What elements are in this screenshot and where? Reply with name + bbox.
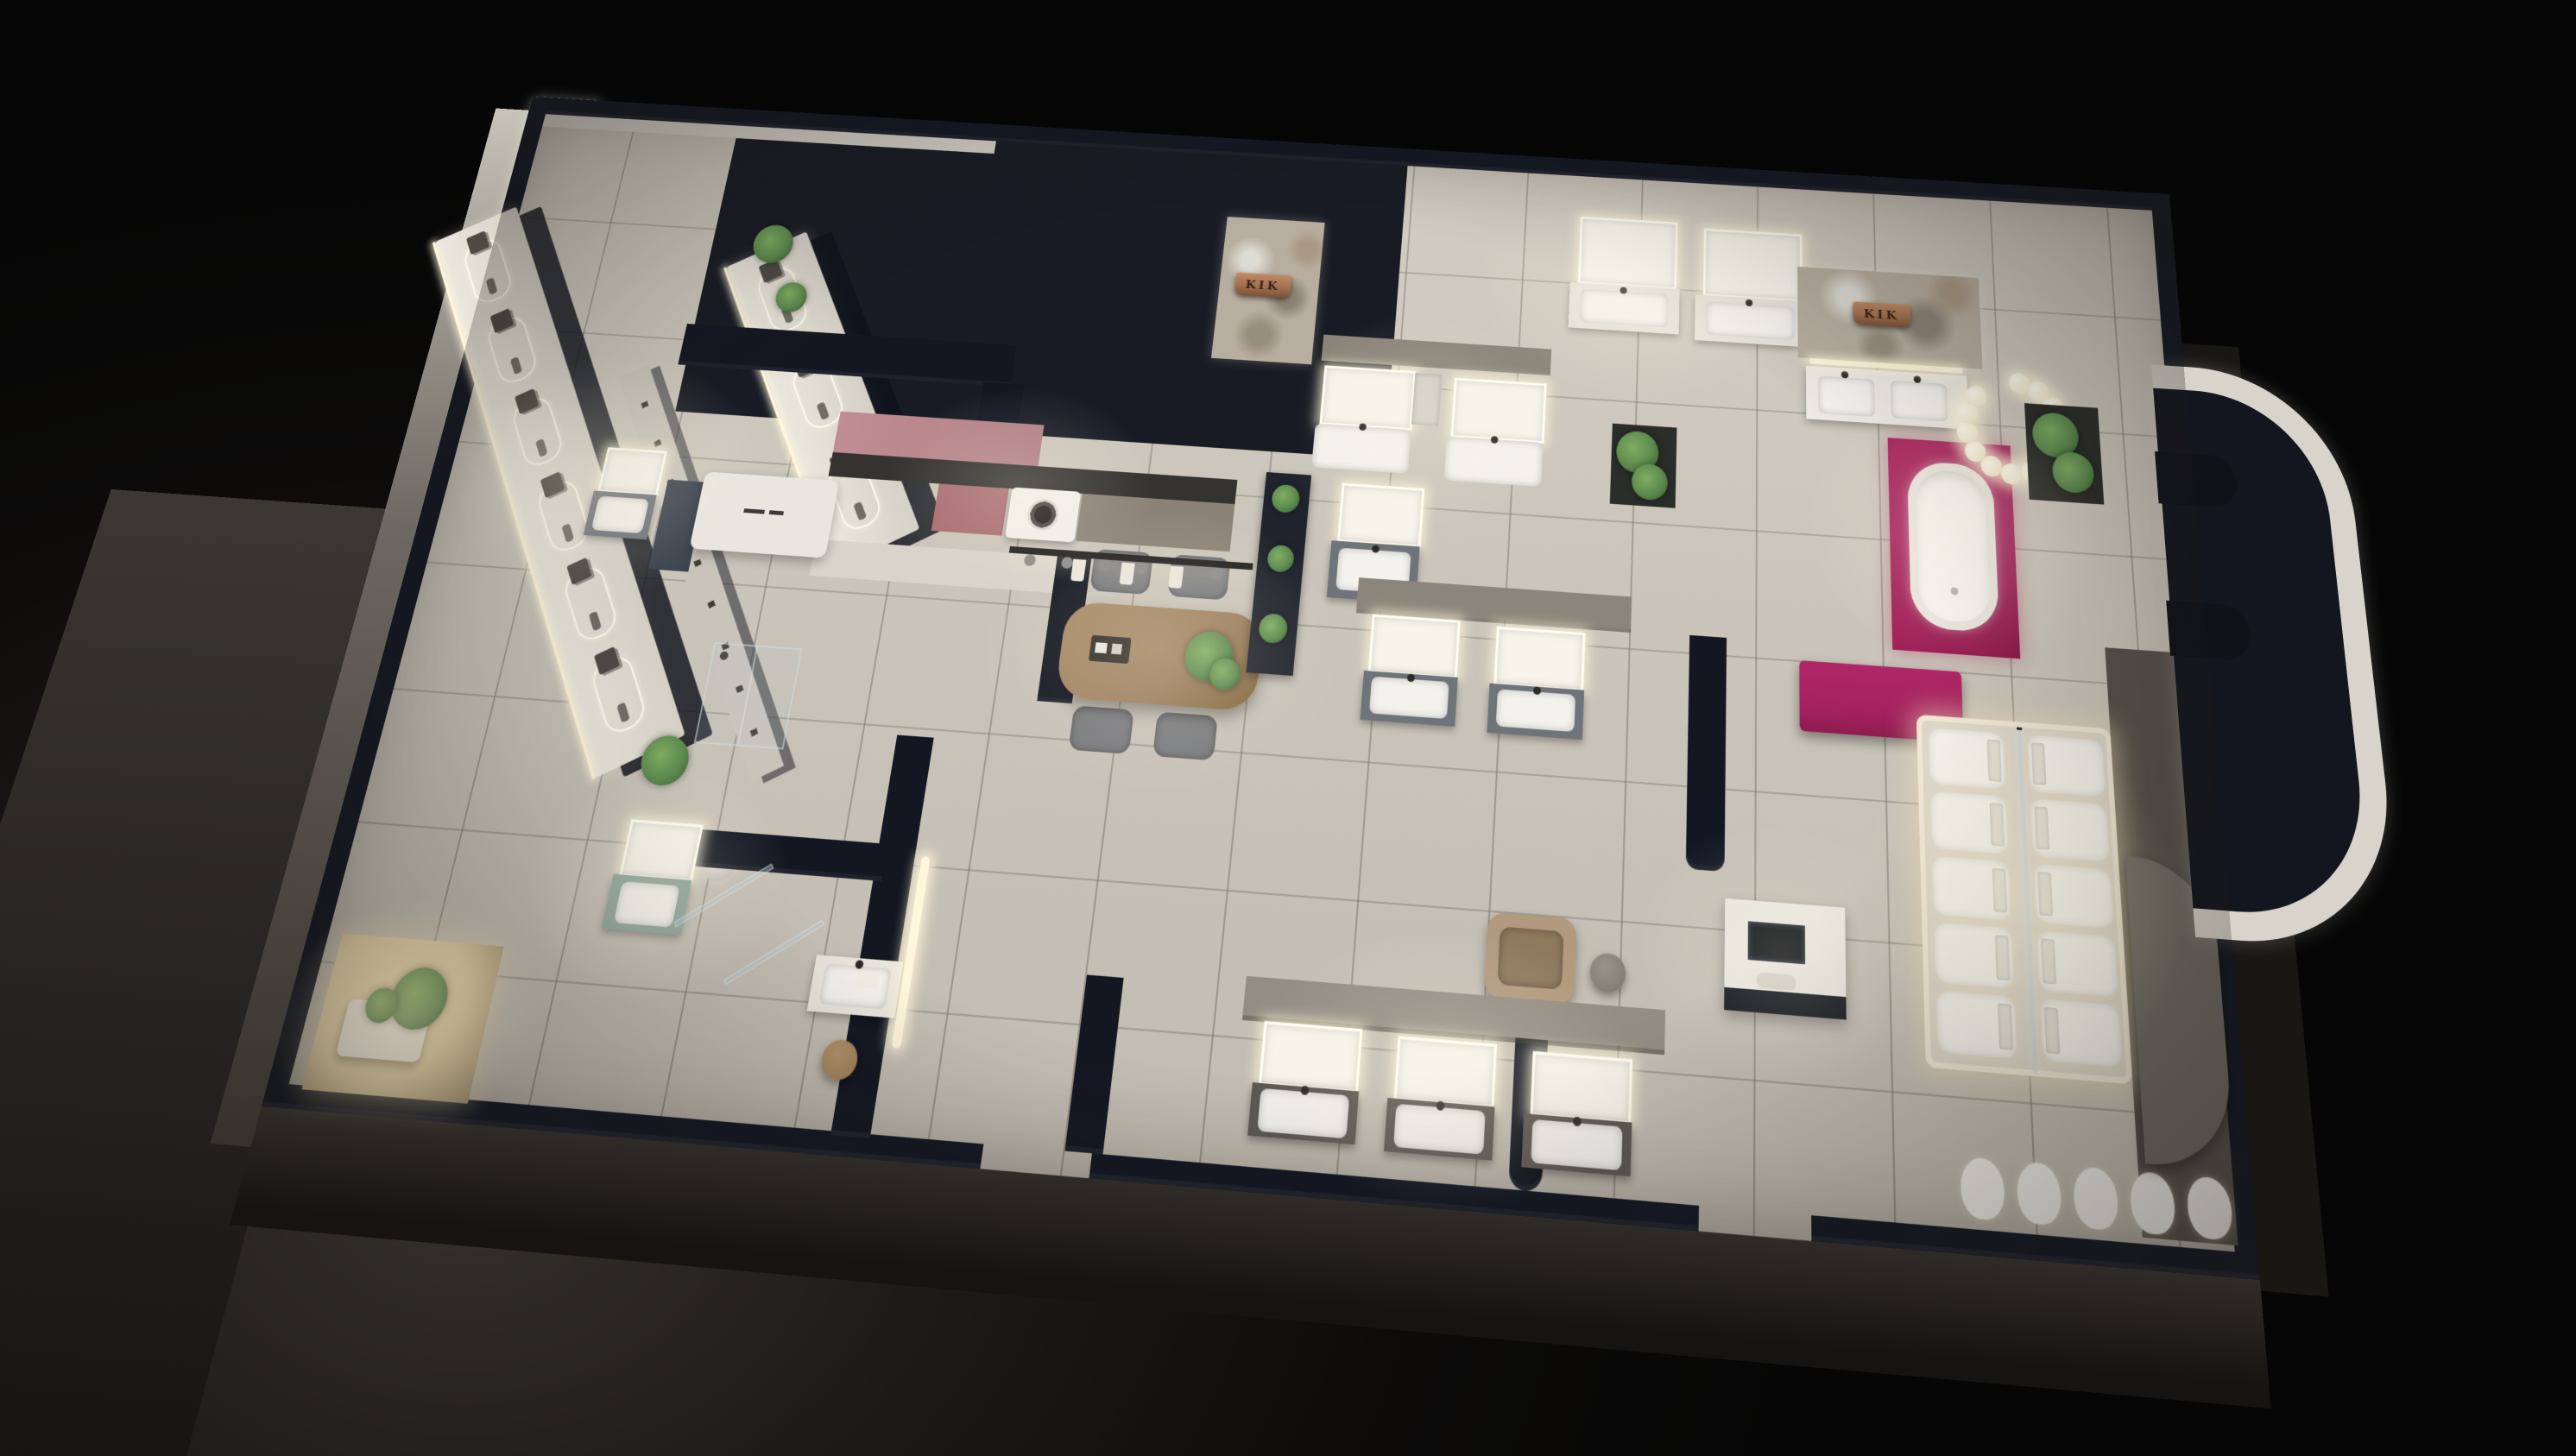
- vanity-basin: [1444, 436, 1544, 487]
- freestanding-bathtub: [1907, 461, 1999, 633]
- hanging-towel: [1168, 566, 1184, 589]
- partition-tub-divider: [1686, 635, 1727, 872]
- floorplan-3d: KIK KIK: [76, 67, 2576, 1456]
- display-toilet: [1936, 991, 2017, 1059]
- planter-box: [1610, 424, 1677, 508]
- display-toilet: [2036, 930, 2118, 997]
- desk-logo-mark: [743, 508, 765, 514]
- dining-chair: [1152, 712, 1218, 761]
- gallery-end-mirror: [597, 447, 667, 495]
- pink-cabinet: [931, 483, 1009, 535]
- vanity-mirror: [1368, 615, 1461, 679]
- showroom-render: KIK KIK: [0, 0, 2576, 1456]
- vanity-mirror: [1451, 378, 1547, 444]
- planter-greenery: [2051, 451, 2095, 494]
- display-toilet: [1930, 791, 2008, 854]
- double-vanity-counter: [1806, 366, 1969, 430]
- display-toilet: [1935, 923, 2014, 989]
- vanity-cabinet: [1487, 684, 1584, 740]
- table-tray: [1089, 635, 1132, 664]
- vanity-mirror: [619, 819, 704, 882]
- vanity-shelf: [1411, 373, 1443, 426]
- kik-sign-text: KIK: [1245, 278, 1281, 293]
- vanity-cabinet: [1247, 1082, 1359, 1144]
- vanity-mirror: [1259, 1021, 1362, 1094]
- hanging-towel: [856, 972, 881, 989]
- reception-desk: [689, 471, 839, 558]
- planter-box: [2024, 403, 2104, 504]
- island-tray: [1757, 972, 1796, 991]
- washer-door-icon: [1026, 498, 1060, 531]
- lounge-chair: [1484, 912, 1576, 1005]
- display-toilet: [1933, 856, 2011, 921]
- vanity-counter: [1569, 282, 1680, 334]
- vanity-cabinet: [1360, 671, 1457, 727]
- kik-brand-sign: KIK: [1853, 301, 1910, 328]
- hanging-towel: [1119, 563, 1134, 585]
- vanity-cabinet: [1521, 1113, 1632, 1176]
- washing-machine: [1005, 487, 1081, 542]
- vanity-mirror: [1493, 627, 1585, 692]
- island-screen: [1748, 921, 1805, 964]
- vanity-mirror: [1530, 1051, 1632, 1125]
- display-toilet: [2030, 798, 2110, 861]
- vanity-basin: [1311, 424, 1411, 474]
- display-toilet: [2027, 735, 2106, 797]
- display-toilet: [2034, 864, 2114, 929]
- vanity-mirror: [1337, 483, 1424, 548]
- vanity-mirror: [1319, 365, 1416, 431]
- planter-greenery: [1632, 463, 1669, 501]
- vanity-counter: [1695, 294, 1806, 347]
- desk-logo-mark: [769, 510, 784, 515]
- display-toilet: [2040, 999, 2122, 1067]
- display-toilet: [1929, 728, 2005, 789]
- kik-brand-sign: KIK: [1234, 273, 1291, 299]
- kik-sign-text: KIK: [1864, 306, 1900, 322]
- vanity-cabinet: [1384, 1098, 1494, 1161]
- vanity-mirror: [1578, 217, 1678, 290]
- vanity-mirror: [1703, 229, 1803, 302]
- dining-chair: [1069, 705, 1134, 754]
- gallery-end-vanity: [584, 490, 657, 539]
- tub-drain-icon: [1951, 587, 1959, 595]
- vanity-mirror: [1394, 1036, 1498, 1108]
